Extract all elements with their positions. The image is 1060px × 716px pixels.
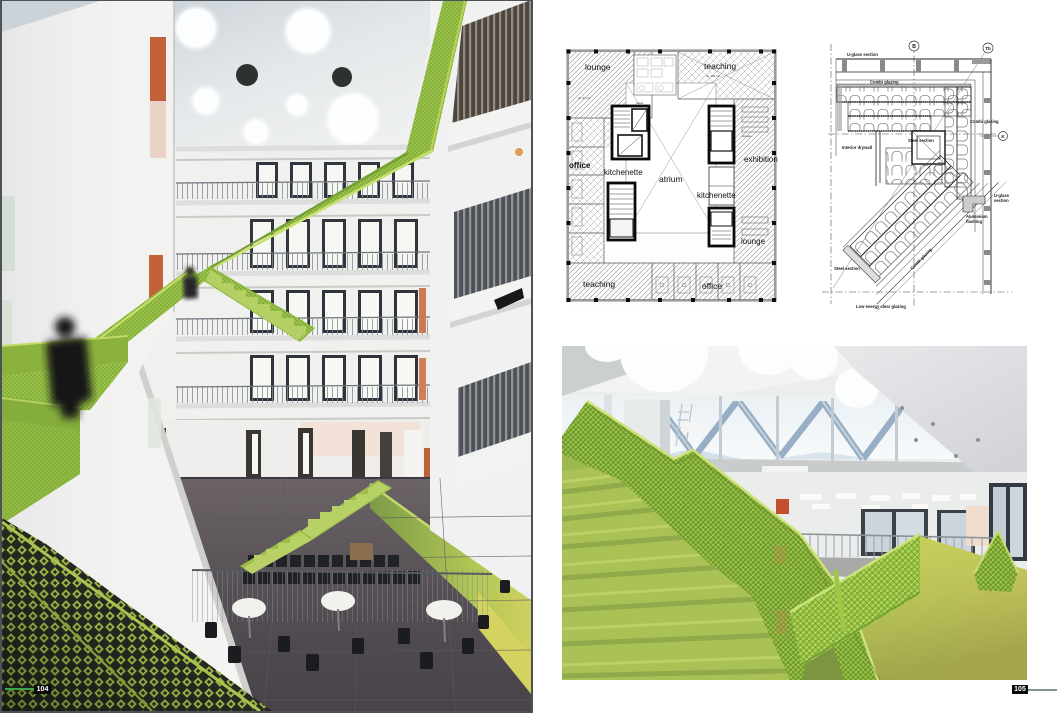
svg-text:flashing: flashing bbox=[966, 219, 982, 224]
svg-text:atrium: atrium bbox=[659, 174, 683, 184]
svg-text:storage: storage bbox=[742, 134, 752, 138]
svg-text:kitchenette: kitchenette bbox=[697, 191, 736, 200]
svg-text:ca. 97 m2: ca. 97 m2 bbox=[578, 96, 591, 100]
svg-text:lounge: lounge bbox=[585, 62, 611, 72]
svg-text:toilets: toilets bbox=[636, 101, 644, 105]
svg-text:Steel section: Steel section bbox=[834, 266, 860, 271]
svg-text:B: B bbox=[912, 44, 916, 50]
svg-text:office: office bbox=[569, 161, 591, 170]
svg-text:office: office bbox=[702, 281, 722, 291]
svg-text:lounge: lounge bbox=[741, 237, 766, 246]
svg-text:kitchenette: kitchenette bbox=[604, 168, 643, 177]
svg-text:teaching: teaching bbox=[704, 61, 736, 71]
svg-text:Interior drywall: Interior drywall bbox=[842, 145, 872, 150]
svg-text:section: section bbox=[994, 198, 1009, 203]
svg-text:Combi glazing: Combi glazing bbox=[870, 80, 899, 85]
svg-text:teaching: teaching bbox=[583, 279, 615, 289]
svg-text:ca. 120 m2: ca. 120 m2 bbox=[706, 74, 720, 78]
svg-text:Combi glazing: Combi glazing bbox=[970, 119, 999, 124]
svg-text:exhibition: exhibition bbox=[744, 155, 778, 164]
svg-text:Low energy clear glazing: Low energy clear glazing bbox=[856, 304, 906, 309]
svg-text:Tb: Tb bbox=[985, 46, 991, 51]
svg-text:U-glass section: U-glass section bbox=[847, 52, 878, 57]
svg-text:Steel section: Steel section bbox=[908, 138, 934, 143]
